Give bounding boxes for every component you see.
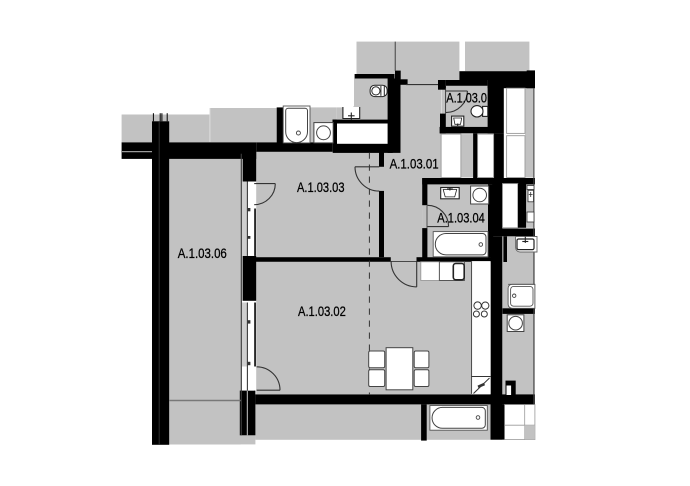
svg-text:A.1.03.01: A.1.03.01 xyxy=(390,156,439,172)
svg-text:A.1.03.02: A.1.03.02 xyxy=(298,303,346,319)
svg-text:A.1.03.03: A.1.03.03 xyxy=(297,179,345,195)
svg-text:A.1.03.04: A.1.03.04 xyxy=(437,209,485,225)
svg-text:A.1.03.0: A.1.03.0 xyxy=(446,89,487,105)
svg-text:A.1.03.06: A.1.03.06 xyxy=(178,245,227,261)
